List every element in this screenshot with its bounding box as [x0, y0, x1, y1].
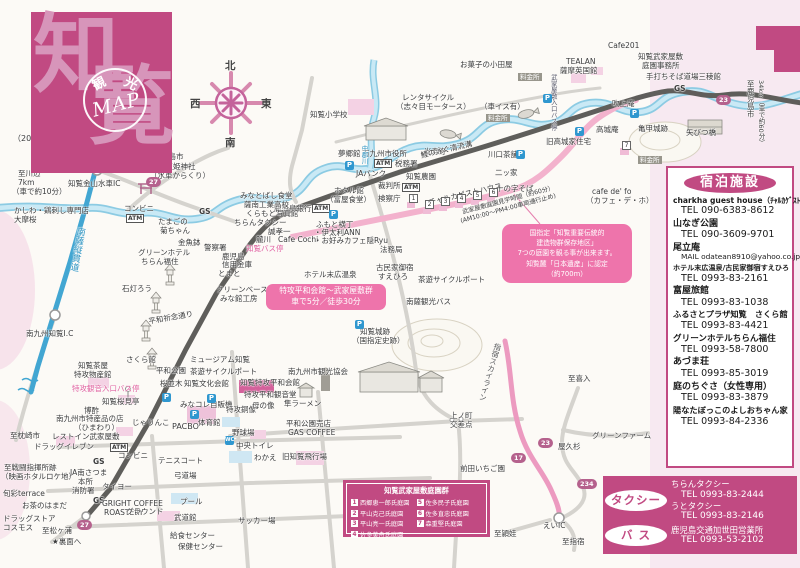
parking-icon: P: [516, 150, 525, 159]
map-label: （映画ホタルロケ地）: [1, 473, 76, 481]
callout-line: 国指定「知覧重要伝統的: [504, 228, 630, 238]
accommodation-contact: TEL 0993-58-7800: [673, 344, 787, 355]
map-label: Cafe201: [608, 42, 639, 50]
map-label: （カフェ・デ・ホ）: [586, 197, 654, 205]
map-label: クリーンベース: [216, 286, 268, 294]
map-label: 知覧武家屋敷: [638, 53, 683, 61]
map-label: 知覧文化会館: [184, 380, 229, 388]
accommodation-name: グリーンホテルちらん福住: [673, 334, 787, 344]
map-label: 中央トイレ: [236, 442, 274, 450]
taxi-row: タクシー ちらんタクシーTEL 0993-83-2444うとタクシーTEL 09…: [605, 479, 795, 523]
map-label: （富屋食堂）: [326, 196, 371, 204]
map-label: かしわ・鶏刺し専門店: [14, 207, 89, 215]
accommodation-item: 富屋旅館TEL 0993-83-1038: [673, 286, 787, 308]
map-label: ホタル館: [334, 187, 364, 195]
map-label: JAバンク: [356, 170, 386, 178]
bus-office-tel: TEL 0993-53-2102: [671, 535, 764, 546]
map-label: お茶のはまだ: [22, 502, 67, 510]
map-label: 特攻平和観音堂: [244, 391, 297, 399]
garden-number: 1: [351, 499, 358, 506]
map-label: 南薩観光バス: [406, 298, 451, 306]
map-label: 特攻観音入口バス停: [72, 385, 140, 393]
accommodation-contact: MAIL odatean8910@yahoo.co.jp: [673, 253, 787, 262]
map-label: 茶遊サイクルポート: [418, 276, 485, 284]
callout-line: 知覧麓「日本遺産」に認定: [504, 259, 630, 269]
map-label: 給食センター: [170, 532, 215, 540]
garden-name: 佐多美舟氏庭園: [360, 530, 403, 539]
map-label: レストイン武家屋敷: [52, 433, 120, 441]
map-label: ドラッグストア: [3, 515, 56, 523]
map-label: （国指定史跡）: [352, 337, 405, 345]
map-label: GS: [674, 85, 686, 93]
map-label: 知覧茶屋: [78, 362, 108, 370]
map-label: 麓川: [256, 236, 271, 244]
garden-name: 西郷恵一郎氏庭園: [360, 498, 410, 507]
map-label: えいIC: [543, 522, 565, 530]
parking-icon: P: [329, 210, 338, 219]
garden-number-badge: 1: [409, 194, 418, 203]
route-number-badge: 234: [577, 479, 597, 489]
map-label: 至戦闘指揮所跡: [4, 464, 57, 472]
map-label: ATM: [126, 214, 144, 223]
accommodation-contact: TEL 0993-83-2161: [673, 273, 787, 284]
map-label: （ひまわり）: [74, 424, 119, 432]
garden-number-badge: 3: [441, 197, 450, 206]
garden-number: 3: [351, 520, 358, 527]
map-label: 中郡川: [360, 145, 367, 165]
transport-panel: タクシー ちらんタクシーTEL 0993-83-2444うとタクシーTEL 09…: [603, 476, 797, 554]
map-label: ・お好みカフェ隠Ryu: [314, 237, 388, 245]
preservation-district-callout: 国指定「知覧重要伝統的建造物群保存地区」7つの庭園を観る事が出来ます。知覧麓「日…: [502, 224, 632, 283]
accommodation-contact: TEL 0993-85-3019: [673, 368, 787, 379]
callout-line: （約700m）: [504, 269, 630, 279]
map-label: みなコレ自販機: [180, 401, 233, 409]
accommodation-contact: TEL 0993-83-3879: [673, 392, 787, 403]
map-label: ちらん福住: [141, 258, 179, 266]
map-label: 体育館: [198, 419, 221, 427]
garden-number-badge: 2: [425, 200, 434, 209]
garden-number: 4: [351, 531, 358, 538]
garden-legend-row: 4佐多美舟氏庭園: [351, 530, 417, 539]
route-number-badge: 27: [77, 520, 92, 530]
map-label: TEALAN: [566, 58, 596, 66]
map-label: 古民家御宿: [376, 264, 414, 272]
map-label: GAS COFFEE: [288, 429, 335, 437]
garden-number-badge: 4: [457, 194, 466, 203]
map-label: 知覧城跡: [360, 328, 390, 336]
map-label: さくら館: [126, 356, 156, 364]
accommodation-title: 宿泊施設: [684, 173, 776, 193]
map-label: 消防署: [72, 487, 95, 495]
bus-badge: バ ス: [605, 525, 667, 546]
garden-number: 7: [417, 520, 424, 527]
map-label: 知覧小学校: [310, 111, 348, 119]
accommodation-name: 富屋旅館: [673, 286, 787, 297]
garden-legend-columns: 1西郷恵一郎氏庭園2平山克己氏庭園3平山亮一氏庭園4佐多美舟氏庭園 5佐多民子氏…: [351, 498, 482, 540]
accommodation-contact: TEL 0993-84-2336: [673, 416, 787, 427]
accommodation-item: ホテル末広温泉/古民家御宿すえひろTEL 0993-83-2161: [673, 264, 787, 284]
garden-legend-inner: 知覧武家屋敷庭園群 1西郷恵一郎氏庭園2平山克己氏庭園3平山亮一氏庭園4佐多美舟…: [346, 483, 487, 534]
accommodation-contact: TEL 090-3609-9701: [673, 229, 787, 240]
bus-office-name: 鹿児島交通加世田営業所: [671, 525, 764, 536]
map-label: ドラッグイレブン: [34, 443, 94, 451]
accommodation-contact: TEL 0993-83-4421: [673, 320, 787, 331]
map-label: お菓子の小田屋: [460, 61, 513, 69]
map-label: 前田いちご園: [460, 465, 505, 473]
map-label: 手打ちそば道場三稜館: [646, 73, 721, 81]
garden-number-badge: 7: [622, 141, 631, 150]
garden-number-badge: 6: [489, 188, 498, 197]
garden-name: 佐多直忠氏庭園: [426, 509, 469, 518]
map-label: グラウンド: [126, 508, 164, 516]
map-label: 料金所: [518, 73, 542, 81]
map-label: レンタサイクル: [402, 94, 454, 102]
parking-icon: P: [355, 320, 364, 329]
accommodation-item: 庭のちぐさ（女性専用）TEL 0993-83-3879: [673, 382, 787, 404]
map-label: とまと: [218, 270, 241, 278]
garden-legend-row: 2平山克己氏庭園: [351, 509, 417, 518]
map-label: 至松ヶ浦: [42, 527, 72, 535]
accommodation-name: 山なぎ公園: [673, 219, 787, 230]
garden-number-badge: 5: [473, 191, 482, 200]
map-label: 石灯ろう: [122, 285, 152, 293]
map-label: JA南さつま: [70, 469, 107, 477]
map-label: グリーンホテル: [138, 249, 190, 257]
accommodation-item: あづま荘TEL 0993-85-3019: [673, 357, 787, 379]
map-label: タイヨー: [102, 483, 132, 491]
map-label: GS: [199, 208, 211, 216]
map-label: わかえ: [254, 454, 277, 462]
map-label: 至鹿児島市: [746, 80, 754, 118]
garden-name: 平山亮一氏庭園: [360, 519, 403, 528]
stamp-map: MAP: [90, 88, 143, 121]
parking-icon: P: [207, 394, 216, 403]
chiran-tourist-map: 北 東 南 西 （2024年7月1日現在）南九州川辺ICへ至鹿児島市裏面へ★至川…: [0, 0, 800, 568]
taxi-company-name: ちらんタクシー: [671, 479, 764, 490]
garden-legend-row: 3平山亮一氏庭園: [351, 519, 417, 528]
map-label: みな館工房: [220, 295, 258, 303]
kanko-map-stamp: 観 光 MAP: [83, 68, 147, 132]
map-label: 金魚鉢: [178, 239, 201, 247]
map-label: 南九州市役所: [362, 150, 407, 158]
map-label: コンビニ: [118, 452, 148, 460]
map-label: 検察庁: [378, 195, 401, 203]
taxi-company-name: うとタクシー: [671, 501, 764, 512]
map-label: 知覧バス停: [246, 245, 284, 253]
accommodation-name: ホテル末広温泉/古民家御宿すえひろ: [673, 264, 787, 273]
map-label: ちらんタクシー: [234, 219, 287, 227]
garden-number: 5: [417, 499, 424, 506]
map-label: 法務局: [380, 246, 403, 254]
parking-icon: P: [575, 127, 584, 136]
garden-name: 平山克己氏庭園: [360, 509, 403, 518]
map-label: 高城庵: [596, 126, 619, 134]
accommodation-name: 庭のちぐさ（女性専用）: [673, 382, 787, 393]
map-label: 本所: [78, 478, 93, 486]
route-number-badge: 23: [716, 95, 731, 105]
map-label: 鯉の泳ぐ清流溝: [420, 140, 473, 160]
map-label: 桜並木: [160, 380, 183, 388]
garden-legend-row: 7森重堅氏庭園: [417, 519, 483, 528]
map-label: 母の像: [252, 402, 275, 410]
map-label: 南九州市特産品の店: [56, 415, 124, 423]
map-label: ATM: [374, 159, 392, 168]
accommodation-contact: TEL 0993-83-1038: [673, 297, 787, 308]
map-label: 庭園事務所: [642, 62, 680, 70]
map-label: ★裏面へ: [52, 538, 81, 546]
map-label: 至頴娃: [494, 530, 517, 538]
map-label: 保健センター: [178, 543, 223, 551]
map-label: 34km（車で約60分）: [757, 80, 764, 146]
map-label: 料金所: [486, 114, 510, 122]
map-label: 知覧農園: [406, 173, 436, 181]
map-label: 至指宿: [562, 538, 585, 546]
callout-line: 7つの庭園を観る事が出来ます。: [504, 248, 630, 258]
map-label: くらもと写真館: [246, 210, 298, 218]
map-label: 南薩縦貫道: [67, 226, 84, 272]
map-label: 裁判所: [378, 182, 401, 190]
accommodation-item: charkha guest house（ﾁｬﾙｶｹﾞｽﾄﾊｳｽ）TEL 090-…: [673, 196, 787, 217]
map-label: 平和祈念通り: [148, 310, 194, 326]
map-label: GS: [93, 458, 105, 466]
parking-icon: P: [162, 393, 171, 402]
accommodation-name: あづま荘: [673, 357, 787, 368]
map-label: 武道館: [174, 514, 197, 522]
map-label: たまごの: [158, 218, 188, 226]
map-label: 川口茶舗: [488, 151, 518, 159]
map-label: 上ノ町: [450, 412, 473, 420]
map-label: 旧高城家住宅: [546, 138, 591, 146]
garden-legend: 知覧武家屋敷庭園群 1西郷恵一郎氏庭園2平山克己氏庭園3平山亮一氏庭園4佐多美舟…: [343, 480, 490, 537]
map-label: 知覧特攻平和会館: [240, 379, 300, 387]
map-label: 平和公園: [156, 367, 186, 375]
map-label: 至枕崎市: [10, 432, 40, 440]
map-label: テニスコート: [158, 457, 203, 465]
map-label: （志々目モータース）: [396, 103, 471, 111]
map-label: PACBO: [172, 423, 199, 432]
garden-legend-col2: 5佐多民子氏庭園6佐多直忠氏庭園7森重堅氏庭園: [417, 498, 483, 540]
map-label: 弓道場: [174, 472, 197, 480]
garden-legend-col1: 1西郷恵一郎氏庭園2平山克己氏庭園3平山亮一氏庭園4佐多美舟氏庭園: [351, 498, 417, 540]
parking-icon: P: [630, 109, 639, 118]
accommodation-contact: TEL 090-6383-8612: [673, 205, 787, 216]
accommodation-item: 尾立庵MAIL odatean8910@yahoo.co.jp: [673, 243, 787, 263]
map-label: 南九州知覧I.C: [26, 330, 73, 338]
map-label: すえひろ: [378, 273, 408, 281]
map-label: 吹上庵: [612, 100, 635, 108]
taxi-company-tel: TEL 0993-83-2146: [671, 511, 764, 522]
toilet-icon: WC: [225, 436, 234, 445]
map-label: 薩摩英国館: [560, 67, 598, 75]
garden-legend-row: 5佐多民子氏庭園: [417, 498, 483, 507]
map-label: じゃりんこ: [132, 419, 170, 427]
taxi-badge: タクシー: [605, 490, 667, 511]
map-label: コンビニ: [124, 205, 154, 213]
map-label: 平和公園売店: [286, 420, 331, 428]
map-label: 隼ラーメン: [284, 400, 321, 408]
callout-line: 車で5分／徒歩30分: [268, 297, 384, 308]
title-block: 知 覧 観 光 MAP: [31, 12, 172, 173]
garden-legend-row: 6佐多直忠氏庭園: [417, 509, 483, 518]
accommodation-name: ふるさとプラザ知覧 さくら館: [673, 310, 787, 320]
route-number-badge: 23: [538, 438, 553, 448]
garden-number: 2: [351, 510, 358, 517]
stamp-kan: 観: [88, 71, 108, 94]
map-label: 南九州市観光協会: [288, 368, 348, 376]
map-label: 二ッ家: [495, 169, 518, 177]
accommodation-item: ふるさとプラザ知覧 さくら館TEL 0993-83-4421: [673, 310, 787, 331]
map-label: 知覧金山水車IC: [68, 180, 120, 188]
map-label: 信用金庫: [222, 261, 252, 269]
garden-name: 佐多民子氏庭園: [426, 498, 469, 507]
bus-row: バ ス 鹿児島交通加世田営業所TEL 0993-53-2102: [605, 525, 795, 547]
map-label: （車で約10分）: [12, 188, 67, 196]
map-label: 旧知覧飛行場: [282, 453, 327, 461]
map-label: 指宿スカイライン: [477, 342, 501, 402]
accommodation-item: 山なぎ公園TEL 090-3609-9701: [673, 219, 787, 241]
accommodation-item: 陽なたぼっこのよしおちゃん家TEL 0993-84-2336: [673, 406, 787, 427]
map-label: 交差点: [450, 421, 473, 429]
parking-icon: P: [345, 161, 354, 170]
map-label: ATM: [312, 204, 330, 213]
accommodation-name: 陽なたぼっこのよしおちゃん家: [673, 406, 787, 416]
map-label: Cafe Cochi: [278, 236, 318, 244]
map-label: みなとばし食堂: [240, 192, 293, 200]
map-label: 至喜入: [568, 375, 591, 383]
map-label: ATM: [402, 183, 420, 192]
map-label: 夢郷館: [338, 150, 361, 158]
accommodation-panel: 宿泊施設 charkha guest house（ﾁｬﾙｶｹﾞｽﾄﾊｳｽ）TEL…: [666, 166, 794, 468]
accommodation-list: charkha guest house（ﾁｬﾙｶｹﾞｽﾄﾊｳｽ）TEL 090-…: [673, 196, 787, 427]
bus-entries: 鹿児島交通加世田営業所TEL 0993-53-2102: [671, 525, 764, 547]
taxi-company-tel: TEL 0993-83-2444: [671, 490, 764, 501]
route-number-badge: 17: [511, 453, 526, 463]
map-label: 特攻物産館: [74, 371, 112, 379]
callout-line: 建造物群保存地区」: [504, 238, 630, 248]
map-label: cafe de' fo: [592, 188, 631, 196]
map-label: 料金所: [638, 156, 662, 164]
map-label: ミュージアム知覧: [190, 356, 250, 364]
map-label: 旬彩terrace: [3, 490, 45, 498]
map-label: 大摩桜: [14, 216, 37, 224]
map-label: 警察署: [204, 244, 227, 252]
map-label: プール: [180, 498, 203, 506]
garden-legend-row: 1西郷恵一郎氏庭園: [351, 498, 417, 507]
map-label: 知覧桜見亭: [102, 398, 140, 406]
garden-name: 森重堅氏庭園: [426, 519, 463, 528]
map-label: （車イス有）: [480, 103, 525, 111]
map-label: 亀甲城跡: [638, 125, 668, 133]
garden-legend-title: 知覧武家屋敷庭園群: [351, 486, 482, 496]
parking-icon: P: [543, 94, 552, 103]
map-label: 屋久杉: [558, 443, 581, 451]
accommodation-item: グリーンホテルちらん福住TEL 0993-58-7800: [673, 334, 787, 356]
map-label: グリーンファーム: [592, 432, 651, 440]
parking-icon: P: [190, 410, 199, 419]
accommodation-name: charkha guest house（ﾁｬﾙｶｹﾞｽﾄﾊｳｽ）: [673, 196, 787, 205]
map-label: 税務署: [395, 160, 418, 168]
peace-museum-distance-callout: 特攻平和会館～武家屋敷群車で5分／徒歩30分: [266, 284, 386, 310]
map-label: ホテル末広温泉: [304, 271, 357, 279]
callout-line: 特攻平和会館～武家屋敷群: [268, 286, 384, 297]
map-label: サッカー場: [238, 517, 276, 525]
map-label: 野球場: [232, 429, 255, 437]
map-label: 茶遊サイクルポート: [190, 368, 257, 376]
map-label: 薩南工業高校: [244, 201, 289, 209]
garden-number: 6: [417, 510, 424, 517]
taxi-entries: ちらんタクシーTEL 0993-83-2444うとタクシーTEL 0993-83…: [671, 479, 764, 523]
map-label: 7km: [18, 179, 34, 187]
map-label: 矢びつ橋: [686, 129, 716, 137]
map-label: コスモス: [3, 524, 33, 532]
map-label: 菊ちゃん: [160, 227, 190, 235]
map-label: 十の字そば: [496, 185, 534, 193]
route-number-badge: 27: [146, 177, 161, 187]
